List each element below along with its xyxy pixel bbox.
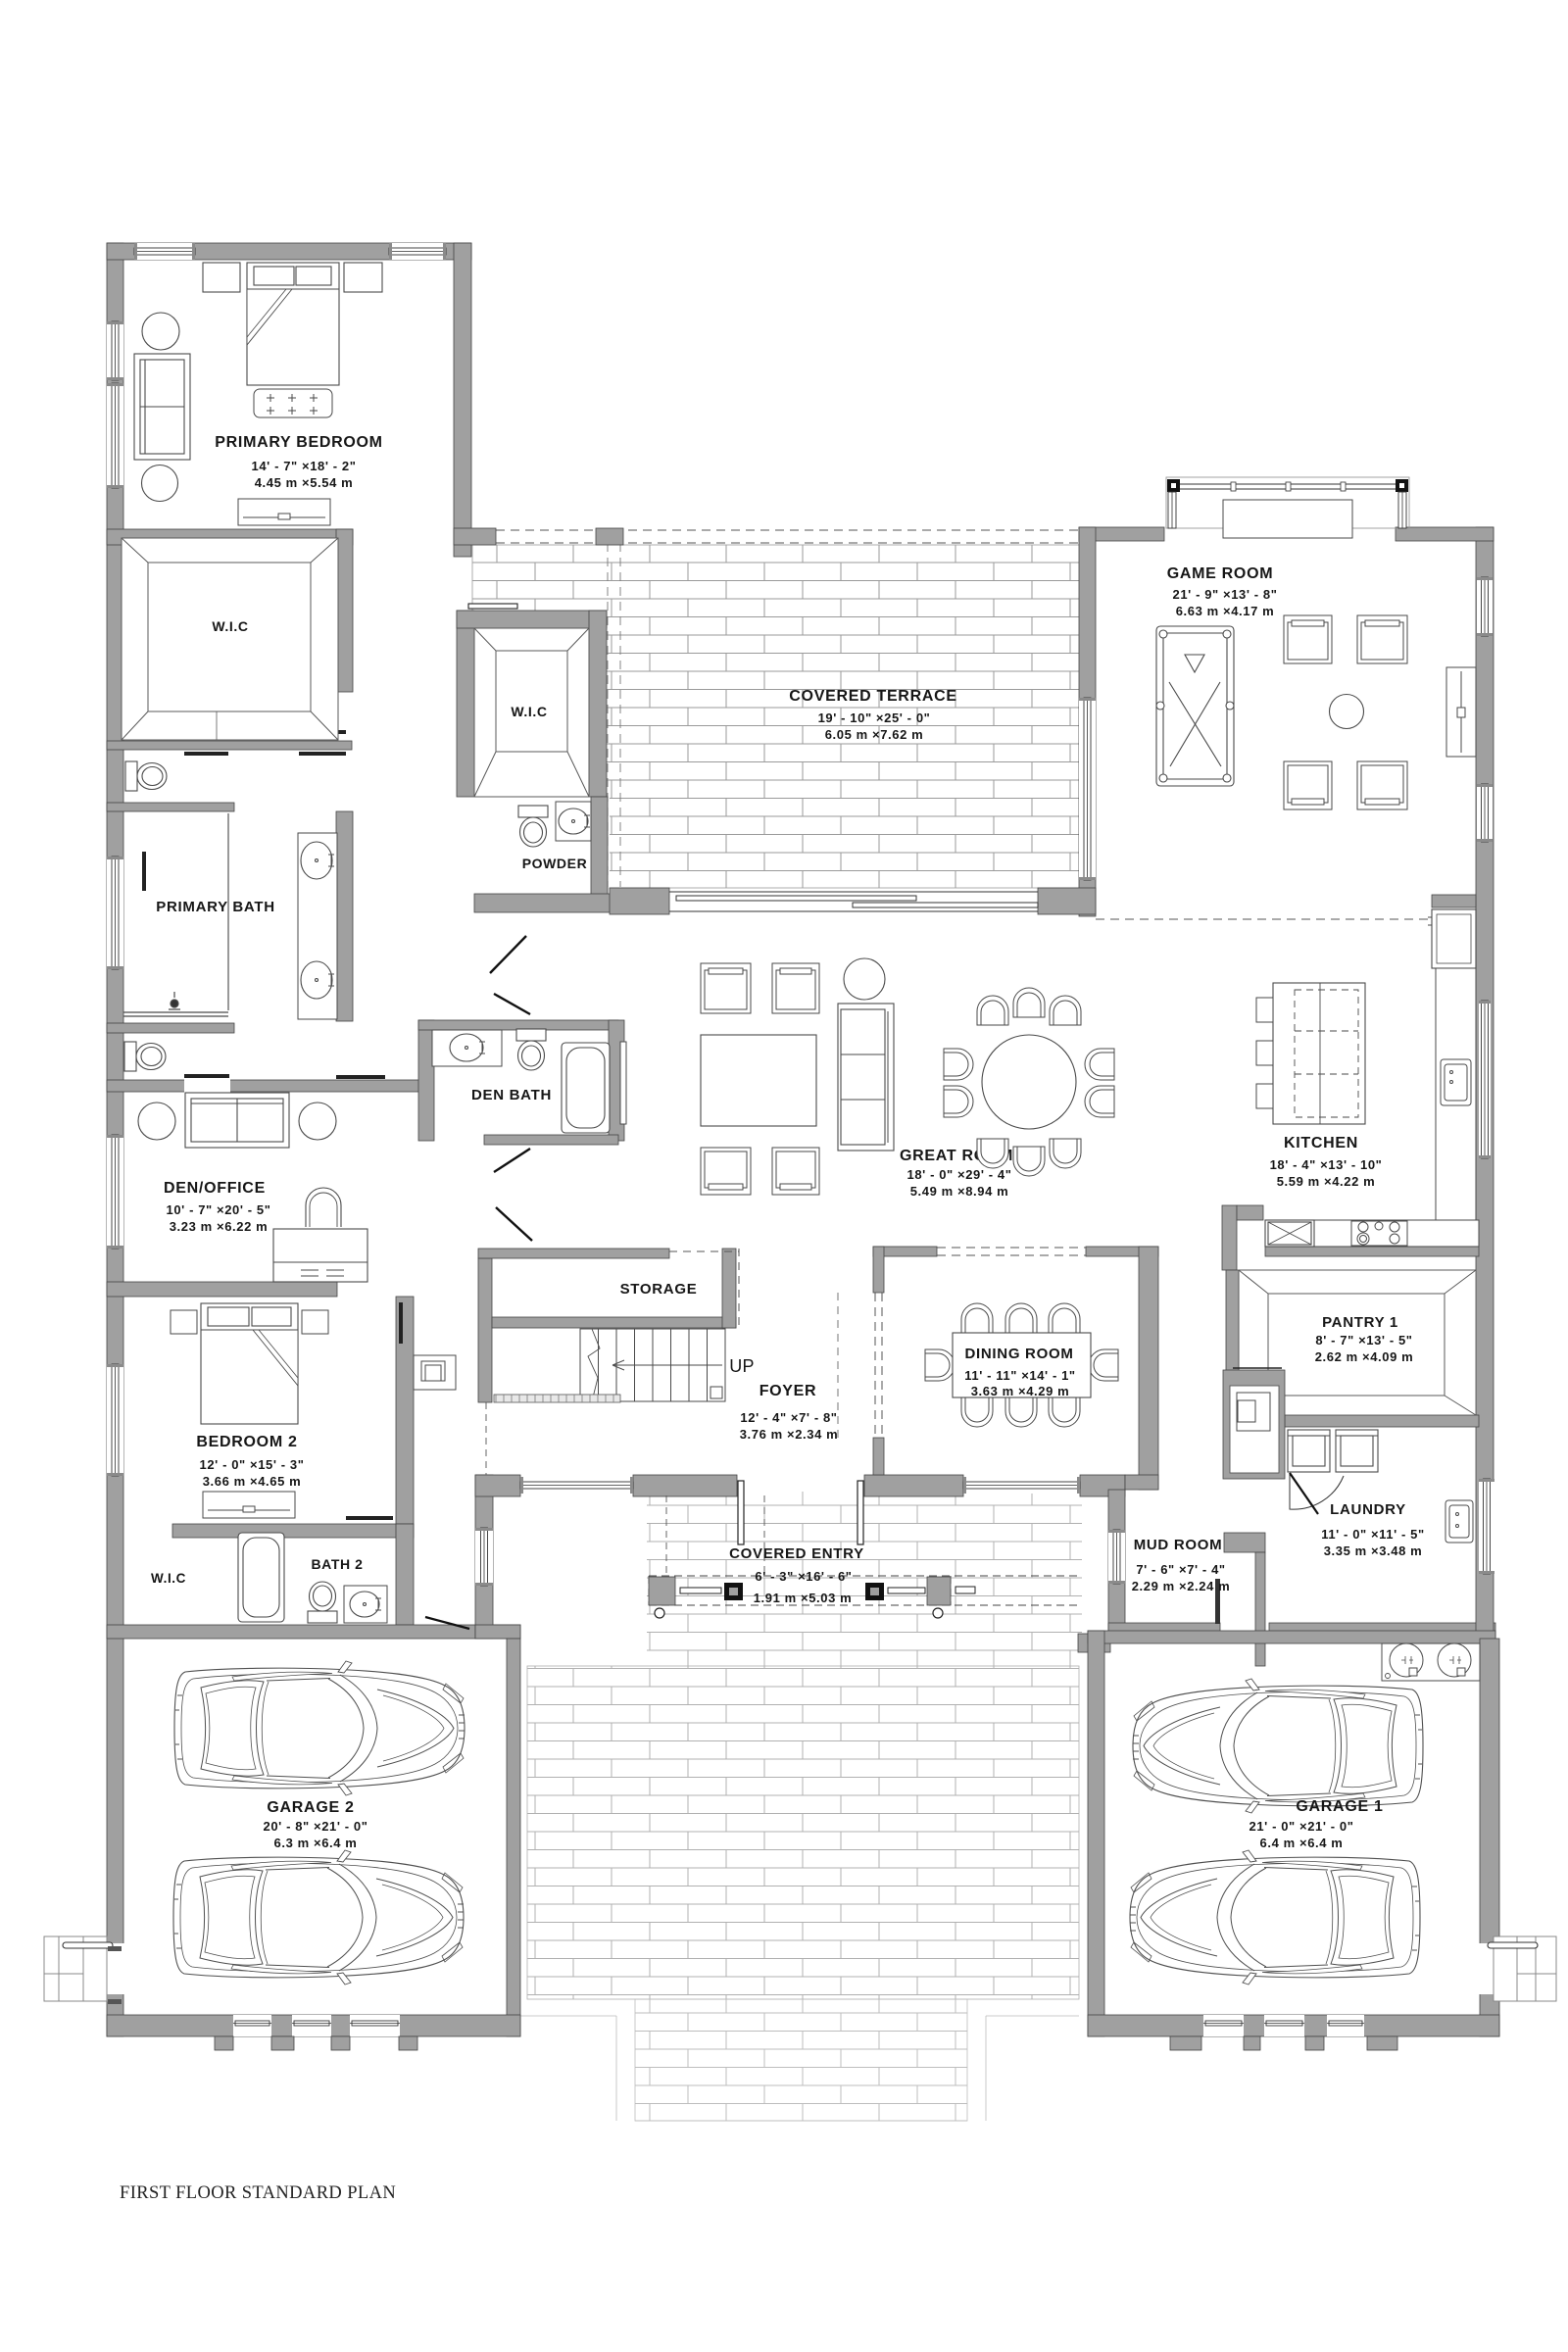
svg-text:11' - 11" ×14' - 1": 11' - 11" ×14' - 1" — [964, 1368, 1075, 1383]
svg-text:6.3 m ×6.4 m: 6.3 m ×6.4 m — [274, 1836, 358, 1850]
svg-text:12' - 4" ×7' - 8": 12' - 4" ×7' - 8" — [740, 1410, 837, 1425]
svg-text:8' - 7" ×13' - 5": 8' - 7" ×13' - 5" — [1315, 1333, 1412, 1347]
svg-text:21' - 0" ×21' - 0": 21' - 0" ×21' - 0" — [1249, 1819, 1354, 1834]
svg-text:4.45 m ×5.54 m: 4.45 m ×5.54 m — [255, 475, 354, 490]
svg-text:19' - 10" ×25' - 0": 19' - 10" ×25' - 0" — [818, 710, 931, 725]
svg-text:6.4 m ×6.4 m: 6.4 m ×6.4 m — [1260, 1836, 1344, 1850]
svg-text:3.66 m ×4.65 m: 3.66 m ×4.65 m — [203, 1474, 302, 1489]
svg-text:1.91 m ×5.03 m: 1.91 m ×5.03 m — [754, 1591, 853, 1605]
svg-text:BATH 2: BATH 2 — [311, 1556, 363, 1572]
svg-text:11' - 0" ×11' - 5": 11' - 0" ×11' - 5" — [1321, 1527, 1425, 1542]
svg-text:BEDROOM 2: BEDROOM 2 — [196, 1434, 297, 1450]
svg-text:2.29 m ×2.24 m: 2.29 m ×2.24 m — [1132, 1579, 1231, 1593]
svg-text:W.I.C: W.I.C — [212, 618, 248, 634]
svg-text:7' - 6" ×7' - 4": 7' - 6" ×7' - 4" — [1136, 1562, 1225, 1577]
svg-text:3.23 m ×6.22 m: 3.23 m ×6.22 m — [170, 1219, 269, 1234]
svg-text:10' - 7" ×20' - 5": 10' - 7" ×20' - 5" — [167, 1202, 271, 1217]
svg-text:DEN/OFFICE: DEN/OFFICE — [164, 1180, 266, 1197]
svg-text:14' - 7" ×18' - 2": 14' - 7" ×18' - 2" — [252, 459, 357, 473]
svg-text:6' - 3" ×16' - 6": 6' - 3" ×16' - 6" — [755, 1569, 852, 1584]
svg-text:5.49 m ×8.94 m: 5.49 m ×8.94 m — [910, 1184, 1009, 1199]
svg-text:W.I.C: W.I.C — [151, 1571, 186, 1586]
svg-text:18' - 4" ×13' - 10": 18' - 4" ×13' - 10" — [1270, 1157, 1383, 1172]
svg-text:20' - 8" ×21' - 0": 20' - 8" ×21' - 0" — [264, 1819, 368, 1834]
svg-text:FOYER: FOYER — [759, 1383, 817, 1399]
svg-text:6.05 m ×7.62 m: 6.05 m ×7.62 m — [825, 727, 924, 742]
svg-text:5.59 m ×4.22 m: 5.59 m ×4.22 m — [1277, 1174, 1376, 1189]
svg-text:21' - 9" ×13' - 8": 21' - 9" ×13' - 8" — [1173, 587, 1278, 602]
svg-text:COVERED TERRACE: COVERED TERRACE — [789, 688, 956, 705]
svg-text:PANTRY 1: PANTRY 1 — [1322, 1314, 1398, 1331]
svg-text:GARAGE 1: GARAGE 1 — [1296, 1798, 1383, 1815]
svg-text:6.63 m ×4.17 m: 6.63 m ×4.17 m — [1176, 604, 1275, 618]
svg-text:DINING ROOM: DINING ROOM — [964, 1346, 1073, 1362]
svg-text:UP: UP — [729, 1356, 755, 1376]
svg-text:W.I.C: W.I.C — [511, 704, 547, 719]
svg-text:POWDER: POWDER — [522, 856, 588, 871]
svg-text:12' - 0" ×15' - 3": 12' - 0" ×15' - 3" — [200, 1457, 305, 1472]
svg-text:STORAGE: STORAGE — [620, 1281, 698, 1298]
svg-text:PRIMARY BEDROOM: PRIMARY BEDROOM — [215, 434, 382, 451]
svg-text:2.62 m ×4.09 m: 2.62 m ×4.09 m — [1315, 1349, 1414, 1364]
svg-text:FIRST FLOOR STANDARD PLAN: FIRST FLOOR STANDARD PLAN — [120, 2183, 396, 2203]
svg-text:COVERED ENTRY: COVERED ENTRY — [729, 1545, 864, 1562]
svg-text:3.35 m ×3.48 m: 3.35 m ×3.48 m — [1324, 1543, 1423, 1558]
svg-text:GARAGE 2: GARAGE 2 — [267, 1799, 354, 1816]
svg-text:GAME ROOM: GAME ROOM — [1167, 565, 1274, 582]
svg-text:MUD ROOM: MUD ROOM — [1134, 1537, 1223, 1553]
svg-text:3.63 m ×4.29 m: 3.63 m ×4.29 m — [971, 1384, 1070, 1398]
svg-text:3.76 m ×2.34 m: 3.76 m ×2.34 m — [740, 1427, 839, 1442]
svg-text:KITCHEN: KITCHEN — [1284, 1135, 1358, 1151]
svg-text:LAUNDRY: LAUNDRY — [1330, 1501, 1406, 1518]
svg-text:PRIMARY BATH: PRIMARY BATH — [156, 899, 274, 915]
svg-text:18' - 0" ×29' - 4": 18' - 0" ×29' - 4" — [907, 1167, 1012, 1182]
svg-text:DEN BATH: DEN BATH — [471, 1087, 552, 1103]
